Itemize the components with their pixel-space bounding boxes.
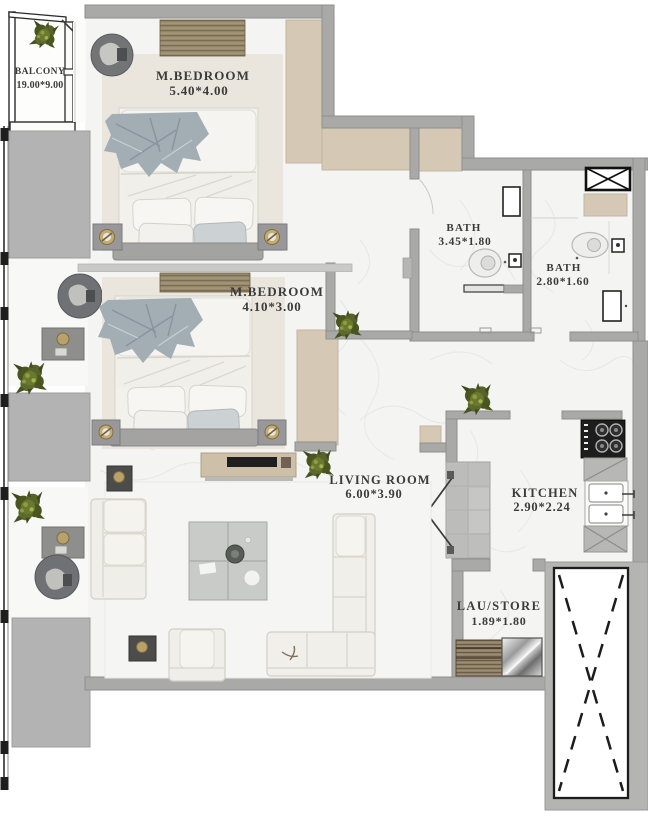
svg-text:2.90*2.24: 2.90*2.24	[513, 500, 570, 514]
svg-text:2.80*1.60: 2.80*1.60	[536, 276, 589, 288]
svg-text:5.40*4.00: 5.40*4.00	[169, 83, 228, 98]
svg-text:LIVING ROOM: LIVING ROOM	[329, 473, 430, 487]
svg-text:19.00*9.00: 19.00*9.00	[17, 80, 64, 91]
svg-text:BALCONY: BALCONY	[15, 67, 65, 77]
svg-text:3.45*1.80: 3.45*1.80	[438, 236, 491, 248]
svg-text:BATH: BATH	[446, 222, 481, 234]
svg-text:4.10*3.00: 4.10*3.00	[242, 299, 301, 314]
svg-text:LAU/STORE: LAU/STORE	[457, 599, 542, 613]
svg-text:M.BEDROOM: M.BEDROOM	[230, 284, 324, 299]
svg-text:KITCHEN: KITCHEN	[512, 486, 579, 500]
svg-text:1.89*1.80: 1.89*1.80	[471, 614, 526, 628]
svg-text:6.00*3.90: 6.00*3.90	[345, 487, 402, 501]
svg-text:BATH: BATH	[546, 262, 581, 274]
svg-text:M.BEDROOM: M.BEDROOM	[156, 68, 250, 83]
